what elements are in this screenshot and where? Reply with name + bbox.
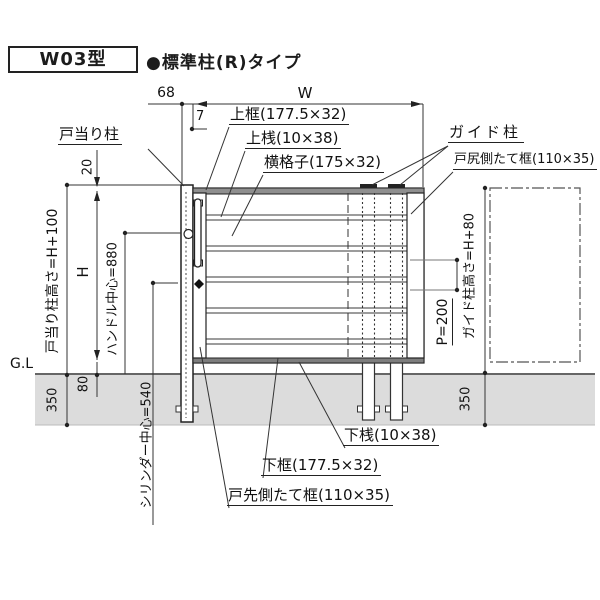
- dim-20: 20: [81, 159, 96, 176]
- label-front-stile: 戸先側たて框(110×35): [227, 487, 393, 506]
- dim-350-right: 350: [459, 387, 474, 412]
- guide-post-cap: [360, 184, 377, 189]
- label-guide-post: ガイド柱: [448, 124, 524, 143]
- model-label-box: W03型: [8, 46, 138, 73]
- dim-post-height: 戸当り柱高さ=H+100: [42, 209, 62, 354]
- top-frame: [193, 188, 424, 194]
- guide-post-cap: [388, 184, 405, 189]
- handle: [195, 199, 202, 267]
- dim-cylinder-center: シリンダー中心=540: [136, 382, 155, 509]
- label-bottom-rail: 下桟(10×38): [343, 427, 439, 446]
- dim-handle-center: ハンドル中心=880: [102, 242, 121, 356]
- label-top-rail: 上桟(10×38): [245, 130, 341, 149]
- label-top-frame: 上框(177.5×32): [229, 106, 349, 125]
- dim-guide-post-height: ガイド柱高さ=H+80: [459, 213, 478, 339]
- dim-w: W: [286, 84, 324, 102]
- phantom-open-position: [490, 188, 580, 362]
- dim-7: 7: [196, 109, 204, 124]
- model-label: W03型: [40, 49, 107, 70]
- bottom-frame: [193, 358, 424, 363]
- dim-350-left: 350: [46, 388, 61, 413]
- label-rear-stile: 戸尻側たて框(110×35): [453, 153, 597, 170]
- front-stile: [193, 193, 206, 358]
- rear-stile: [407, 193, 424, 358]
- drawing-canvas: W03型 ●標準柱(R)タイプ 68 W 7 戸当り柱 上框(177.5×32)…: [0, 0, 600, 600]
- ground-line-label: G.L: [10, 356, 33, 372]
- dim-h: H: [74, 266, 92, 277]
- label-lattice: 横格子(175×32): [263, 154, 384, 173]
- label-bottom-frame: 下框(177.5×32): [261, 457, 381, 476]
- dim-80: 80: [77, 376, 92, 393]
- label-door-stop-post: 戸当り柱: [58, 126, 122, 145]
- gate-panel: [193, 184, 424, 363]
- dim-pitch: P=200: [435, 299, 453, 346]
- ground-band: [35, 374, 595, 425]
- post-type-label: ●標準柱(R)タイプ: [146, 48, 301, 73]
- dim-68: 68: [149, 85, 183, 101]
